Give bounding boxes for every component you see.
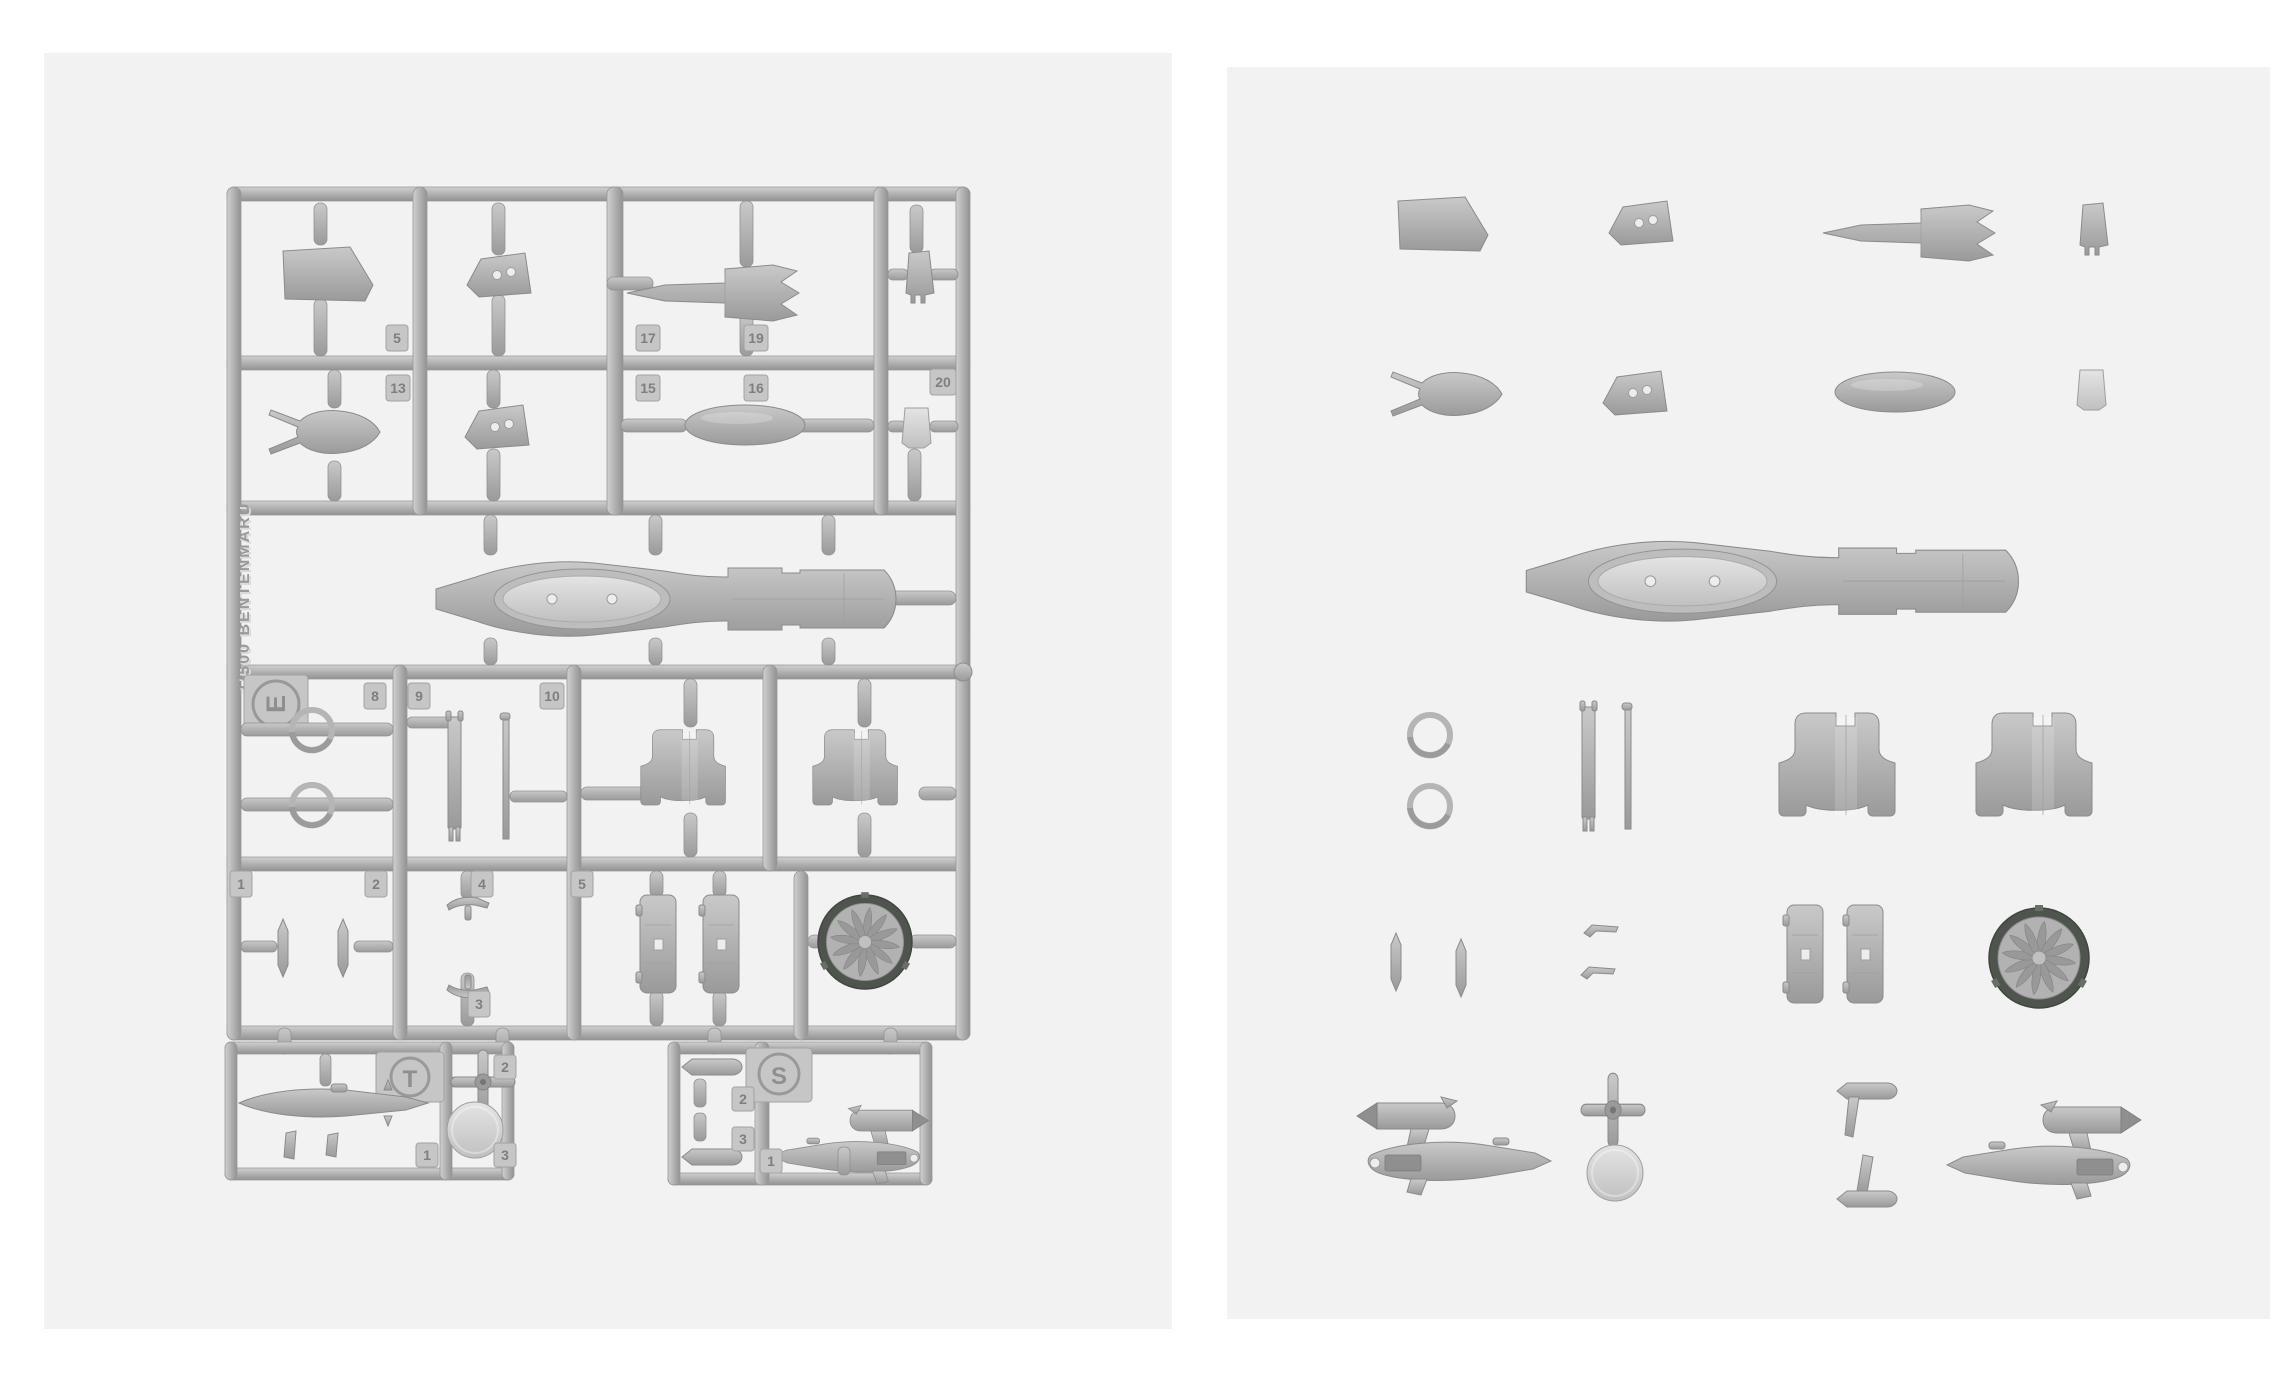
sprue-runner: 1/500 BENTENMARU 1/500 BENTENMARU E [44, 53, 1172, 1329]
subsprue-t-letter: T [403, 1066, 418, 1093]
part-small-ship-1 [1357, 1097, 1551, 1195]
loose-parts-panel [1227, 67, 2270, 1319]
svg-text:15: 15 [640, 380, 656, 396]
part-torpedo-pylon-1 [1837, 1083, 1897, 1137]
subsprue-s: S 2 3 1 [668, 1042, 932, 1185]
part-trapezoid-plate [1398, 197, 1488, 251]
part-clamp-band-1 [636, 895, 676, 993]
svg-text:1: 1 [237, 876, 245, 892]
part-small-wedge [2080, 203, 2108, 255]
part-blade-fin-1 [1391, 933, 1401, 991]
runner-ball-knob [954, 663, 972, 681]
svg-text:16: 16 [748, 380, 764, 396]
part-trapezoid-plate [283, 247, 373, 301]
runner-letter: E [261, 695, 291, 713]
part-mast-strip-a [1580, 701, 1597, 831]
part-mast-strip-a [446, 711, 463, 841]
svg-text:3: 3 [739, 1131, 747, 1147]
part-angle-piece-2 [1581, 967, 1615, 979]
svg-text:19: 19 [748, 330, 764, 346]
part-blade-fin-2 [1456, 939, 1466, 997]
part-small-fin-1 [284, 1131, 296, 1159]
subsprue-s-letter: S [771, 1063, 787, 1090]
part-torpedo-pod-1 [682, 1059, 742, 1075]
part-cross-antenna [1581, 1073, 1645, 1147]
part-mast-strip-b [1622, 703, 1632, 829]
part-clamp-band-2 [1843, 905, 1883, 1003]
part-t-antenna-1 [447, 897, 489, 920]
svg-text:2: 2 [372, 876, 380, 892]
svg-text:10: 10 [544, 688, 560, 704]
part-small-ship-2 [1947, 1101, 2141, 1199]
part-clamp-band-2 [699, 895, 739, 993]
svg-text:5: 5 [578, 876, 586, 892]
part-small-wedge [906, 251, 934, 303]
svg-text:3: 3 [501, 1147, 509, 1163]
part-engine-housing-2 [813, 730, 898, 805]
part-ring-2 [1410, 786, 1450, 826]
part-small-fin-2 [326, 1133, 338, 1157]
brand-embossing: 1/500 BENTENMARU 1/500 BENTENMARU E [236, 502, 308, 733]
loose-parts-layout [1227, 67, 2270, 1319]
part-ellipsoid-pod [1835, 372, 1955, 412]
part-ellipsoid-pod [685, 405, 805, 445]
part-small-ship-s [773, 1105, 928, 1183]
part-crown-spike [1823, 205, 1995, 261]
svg-text:2: 2 [739, 1091, 747, 1107]
part-torpedo-pod-2 [682, 1149, 742, 1165]
svg-text:2: 2 [501, 1059, 509, 1075]
part-wedge-with-holes [1609, 201, 1673, 245]
part-round-disc [1587, 1145, 1643, 1201]
svg-text:1: 1 [767, 1153, 775, 1169]
part-fan-exhaust-disc [1989, 905, 2089, 1008]
svg-text:8: 8 [371, 688, 379, 704]
part-wedge-with-holes-2 [465, 405, 529, 449]
svg-text:13: 13 [390, 380, 406, 396]
part-engine-housing-2 [1976, 713, 2092, 816]
svg-text:9: 9 [415, 688, 423, 704]
part-clamp-band-1 [1783, 905, 1823, 1003]
svg-text:1: 1 [423, 1147, 431, 1163]
part-ring-1 [1410, 715, 1450, 755]
part-blade-fin-1 [278, 919, 288, 977]
part-engine-housing-1 [641, 730, 726, 805]
part-mast-strip-b [500, 713, 510, 839]
part-main-hull [436, 562, 896, 636]
part-engine-housing-1 [1779, 713, 1895, 816]
svg-text:1/500 BENTENMARU: 1/500 BENTENMARU [236, 502, 253, 692]
part-forked-bow [1391, 372, 1502, 416]
svg-text:17: 17 [640, 330, 656, 346]
part-main-hull [1526, 541, 2018, 621]
part-fan-exhaust-disc [818, 892, 912, 989]
part-blade-fin-2 [338, 919, 348, 977]
svg-text:20: 20 [935, 374, 951, 390]
part-angle-piece-1 [1584, 925, 1618, 937]
part-torpedo-pylon-2 [1837, 1155, 1897, 1207]
part-small-cup [902, 408, 931, 448]
part-wedge-with-holes-2 [1603, 371, 1667, 415]
subsprue-t: T 2 1 3 [225, 1042, 516, 1180]
sprue-photo-panel: 1/500 BENTENMARU 1/500 BENTENMARU E [44, 53, 1172, 1329]
svg-text:3: 3 [475, 996, 483, 1012]
svg-text:5: 5 [393, 330, 401, 346]
photo-canvas: 1/500 BENTENMARU 1/500 BENTENMARU E [0, 0, 2296, 1378]
part-crown-spike [627, 265, 799, 321]
part-forked-bow [269, 410, 380, 454]
svg-text:4: 4 [478, 876, 486, 892]
part-wedge-with-holes [467, 253, 531, 297]
part-small-cup [2077, 370, 2106, 410]
loose-parts [1357, 197, 2141, 1207]
